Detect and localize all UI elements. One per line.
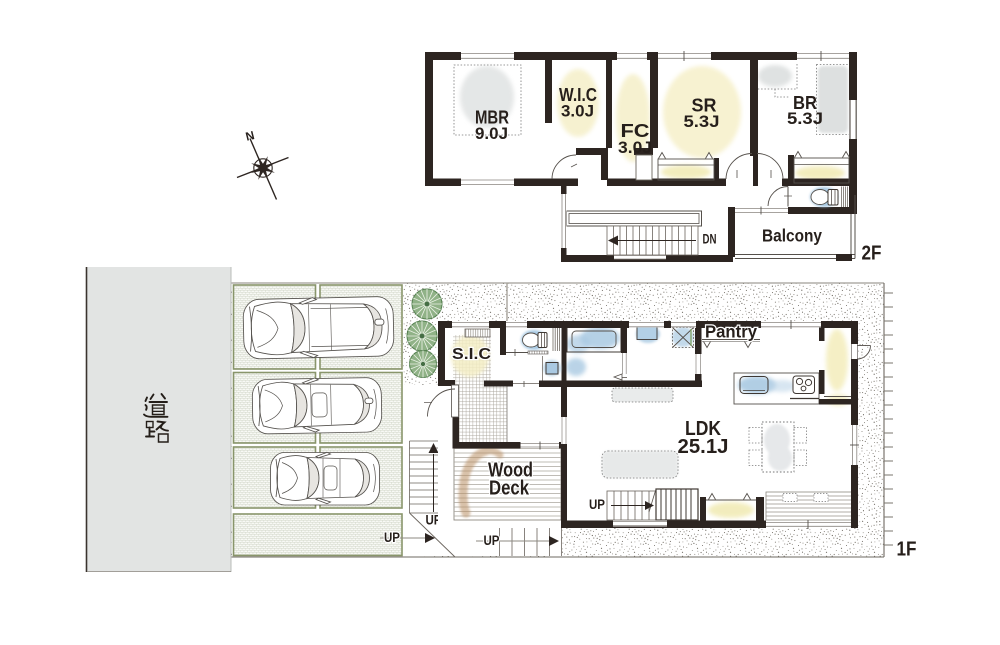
svg-text:UP: UP: [589, 497, 605, 512]
svg-text:DN: DN: [703, 232, 717, 247]
svg-text:3.0J: 3.0J: [561, 102, 594, 121]
svg-text:9.0J: 9.0J: [475, 124, 508, 143]
svg-text:3.0J: 3.0J: [618, 138, 652, 157]
svg-text:2F: 2F: [862, 243, 882, 265]
svg-text:25.1J: 25.1J: [678, 436, 729, 458]
svg-text:Deck: Deck: [489, 478, 530, 500]
svg-text:S.I.C: S.I.C: [452, 346, 491, 363]
svg-text:1F: 1F: [897, 539, 917, 561]
svg-text:Balcony: Balcony: [762, 226, 822, 246]
svg-text:5.3J: 5.3J: [684, 112, 720, 131]
svg-text:5.3J: 5.3J: [787, 109, 823, 128]
svg-text:UP: UP: [484, 533, 500, 548]
svg-text:Pantry: Pantry: [705, 322, 757, 342]
svg-text:UP: UP: [384, 530, 400, 545]
